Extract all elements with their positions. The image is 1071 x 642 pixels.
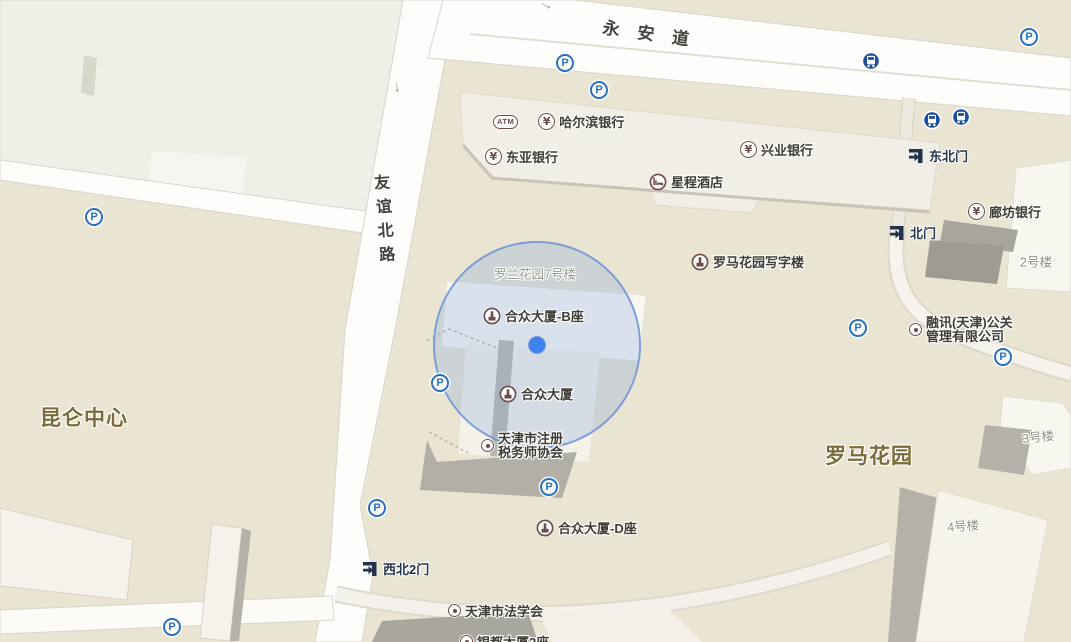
parking-marker[interactable]: P xyxy=(85,208,103,226)
parking-icon: P xyxy=(85,208,103,226)
bus-stop-icon xyxy=(951,107,971,127)
parking-icon: P xyxy=(590,81,608,99)
poi-label: 天津市注册 税务师协会 xyxy=(498,432,563,459)
parking-marker[interactable]: P xyxy=(590,81,608,99)
parking-icon: P xyxy=(1020,28,1038,46)
poi-label-line1: 天津市注册 xyxy=(498,432,563,446)
poi-harbin-bank[interactable]: ATM ¥ 哈尔滨银行 xyxy=(493,112,624,131)
poi-label: 合众大厦-B座 xyxy=(505,306,584,325)
parking-marker[interactable]: P xyxy=(163,618,181,636)
building-label-no2: 2号楼 xyxy=(1020,252,1052,271)
bus-stop-marker[interactable] xyxy=(861,51,881,71)
parking-icon: P xyxy=(163,618,181,636)
parking-icon: P xyxy=(556,54,574,72)
building-icon xyxy=(499,385,517,403)
poi-label: 融讯(天津)公关 管理有限公司 xyxy=(926,316,1013,343)
poi-hezhong-b[interactable]: 合众大厦-B座 xyxy=(483,306,584,325)
bus-stop-icon xyxy=(922,110,942,130)
poi-label: 兴业银行 xyxy=(761,140,813,159)
district-label-kunlun-center: 昆仑中心 xyxy=(40,402,128,432)
gate-northwest2[interactable]: 西北2门 xyxy=(361,559,429,578)
bank-icon: ¥ xyxy=(968,203,985,220)
poi-langfang-bank[interactable]: ¥ 廊坊银行 xyxy=(968,202,1041,221)
bank-icon: ¥ xyxy=(538,113,555,130)
poi-law-society[interactable]: 天津市法学会 xyxy=(448,601,543,620)
poi-dot-icon xyxy=(460,635,473,642)
current-location-dot xyxy=(529,337,545,353)
poi-dot-icon xyxy=(448,604,461,617)
map-viewport[interactable]: 永安道 友谊北路 ↓ → 昆仑中心 罗马花园 罗兰花园7号楼 2号楼 3号楼 4… xyxy=(0,0,1071,642)
building-label-no4: 4号楼 xyxy=(946,514,979,535)
gate-icon xyxy=(888,224,906,242)
gate-label: 北门 xyxy=(910,223,936,242)
bank-icon: ¥ xyxy=(740,141,757,158)
poi-label: 合众大厦-D座 xyxy=(558,518,637,537)
building-icon xyxy=(691,253,709,271)
poi-label: 银都大厦2座 xyxy=(477,632,549,642)
poi-hezhong[interactable]: 合众大厦 xyxy=(499,384,573,403)
parking-icon: P xyxy=(431,374,449,392)
poi-label-line2: 税务师协会 xyxy=(498,446,563,460)
poi-label-line1: 融讯(天津)公关 xyxy=(926,316,1013,330)
gate-north[interactable]: 北门 xyxy=(888,223,936,242)
poi-label-line2: 管理有限公司 xyxy=(926,330,1013,344)
poi-xingcheng-hotel[interactable]: 星程酒店 xyxy=(649,172,723,191)
poi-label: 天津市法学会 xyxy=(465,601,543,620)
parking-marker[interactable]: P xyxy=(368,499,386,517)
poi-rongxun-company[interactable]: 融讯(天津)公关 管理有限公司 xyxy=(909,316,1013,343)
poi-roma-garden-office[interactable]: 罗马花园写字楼 xyxy=(691,252,804,271)
poi-label: 罗马花园写字楼 xyxy=(713,252,804,271)
building-label-no3: 3号楼 xyxy=(1021,425,1055,447)
gate-icon xyxy=(907,147,925,165)
poi-clipped-bottom[interactable]: 银都大厦2座 xyxy=(460,632,549,642)
atm-icon: ATM xyxy=(493,115,518,129)
parking-marker[interactable]: P xyxy=(994,348,1012,366)
hotel-icon xyxy=(649,173,667,191)
poi-label: 合众大厦 xyxy=(521,384,573,403)
district-label-roma-garden: 罗马花园 xyxy=(825,440,913,470)
parking-marker[interactable]: P xyxy=(431,374,449,392)
poi-label: 廊坊银行 xyxy=(989,202,1041,221)
poi-tax-association[interactable]: 天津市注册 税务师协会 xyxy=(481,432,563,459)
building-label-luolan-7: 罗兰花园7号楼 xyxy=(494,264,576,283)
parking-icon: P xyxy=(994,348,1012,366)
gate-label: 东北门 xyxy=(929,146,968,165)
parking-icon: P xyxy=(368,499,386,517)
poi-xingye-bank[interactable]: ¥ 兴业银行 xyxy=(740,140,813,159)
gate-label: 西北2门 xyxy=(383,559,429,578)
poi-dot-icon xyxy=(909,323,922,336)
gate-northeast[interactable]: 东北门 xyxy=(907,146,968,165)
poi-hezhong-d[interactable]: 合众大厦-D座 xyxy=(536,518,637,537)
gate-icon xyxy=(361,560,379,578)
poi-label: 东亚银行 xyxy=(506,147,558,166)
poi-label: 哈尔滨银行 xyxy=(559,112,624,131)
bus-stop-marker[interactable] xyxy=(951,107,971,127)
parking-marker[interactable]: P xyxy=(556,54,574,72)
poi-label: 星程酒店 xyxy=(671,172,723,191)
building-icon xyxy=(483,307,501,325)
bus-stop-icon xyxy=(861,51,881,71)
parking-icon: P xyxy=(540,478,558,496)
parking-marker[interactable]: P xyxy=(849,319,867,337)
parking-icon: P xyxy=(849,319,867,337)
bus-stop-marker[interactable] xyxy=(922,110,942,130)
bank-icon: ¥ xyxy=(485,148,502,165)
poi-dongya-bank[interactable]: ¥ 东亚银行 xyxy=(485,147,558,166)
poi-dot-icon xyxy=(481,439,494,452)
parking-marker[interactable]: P xyxy=(540,478,558,496)
building-icon xyxy=(536,519,554,537)
one-way-arrow-icon: ↓ xyxy=(393,78,402,96)
parking-marker[interactable]: P xyxy=(1020,28,1038,46)
